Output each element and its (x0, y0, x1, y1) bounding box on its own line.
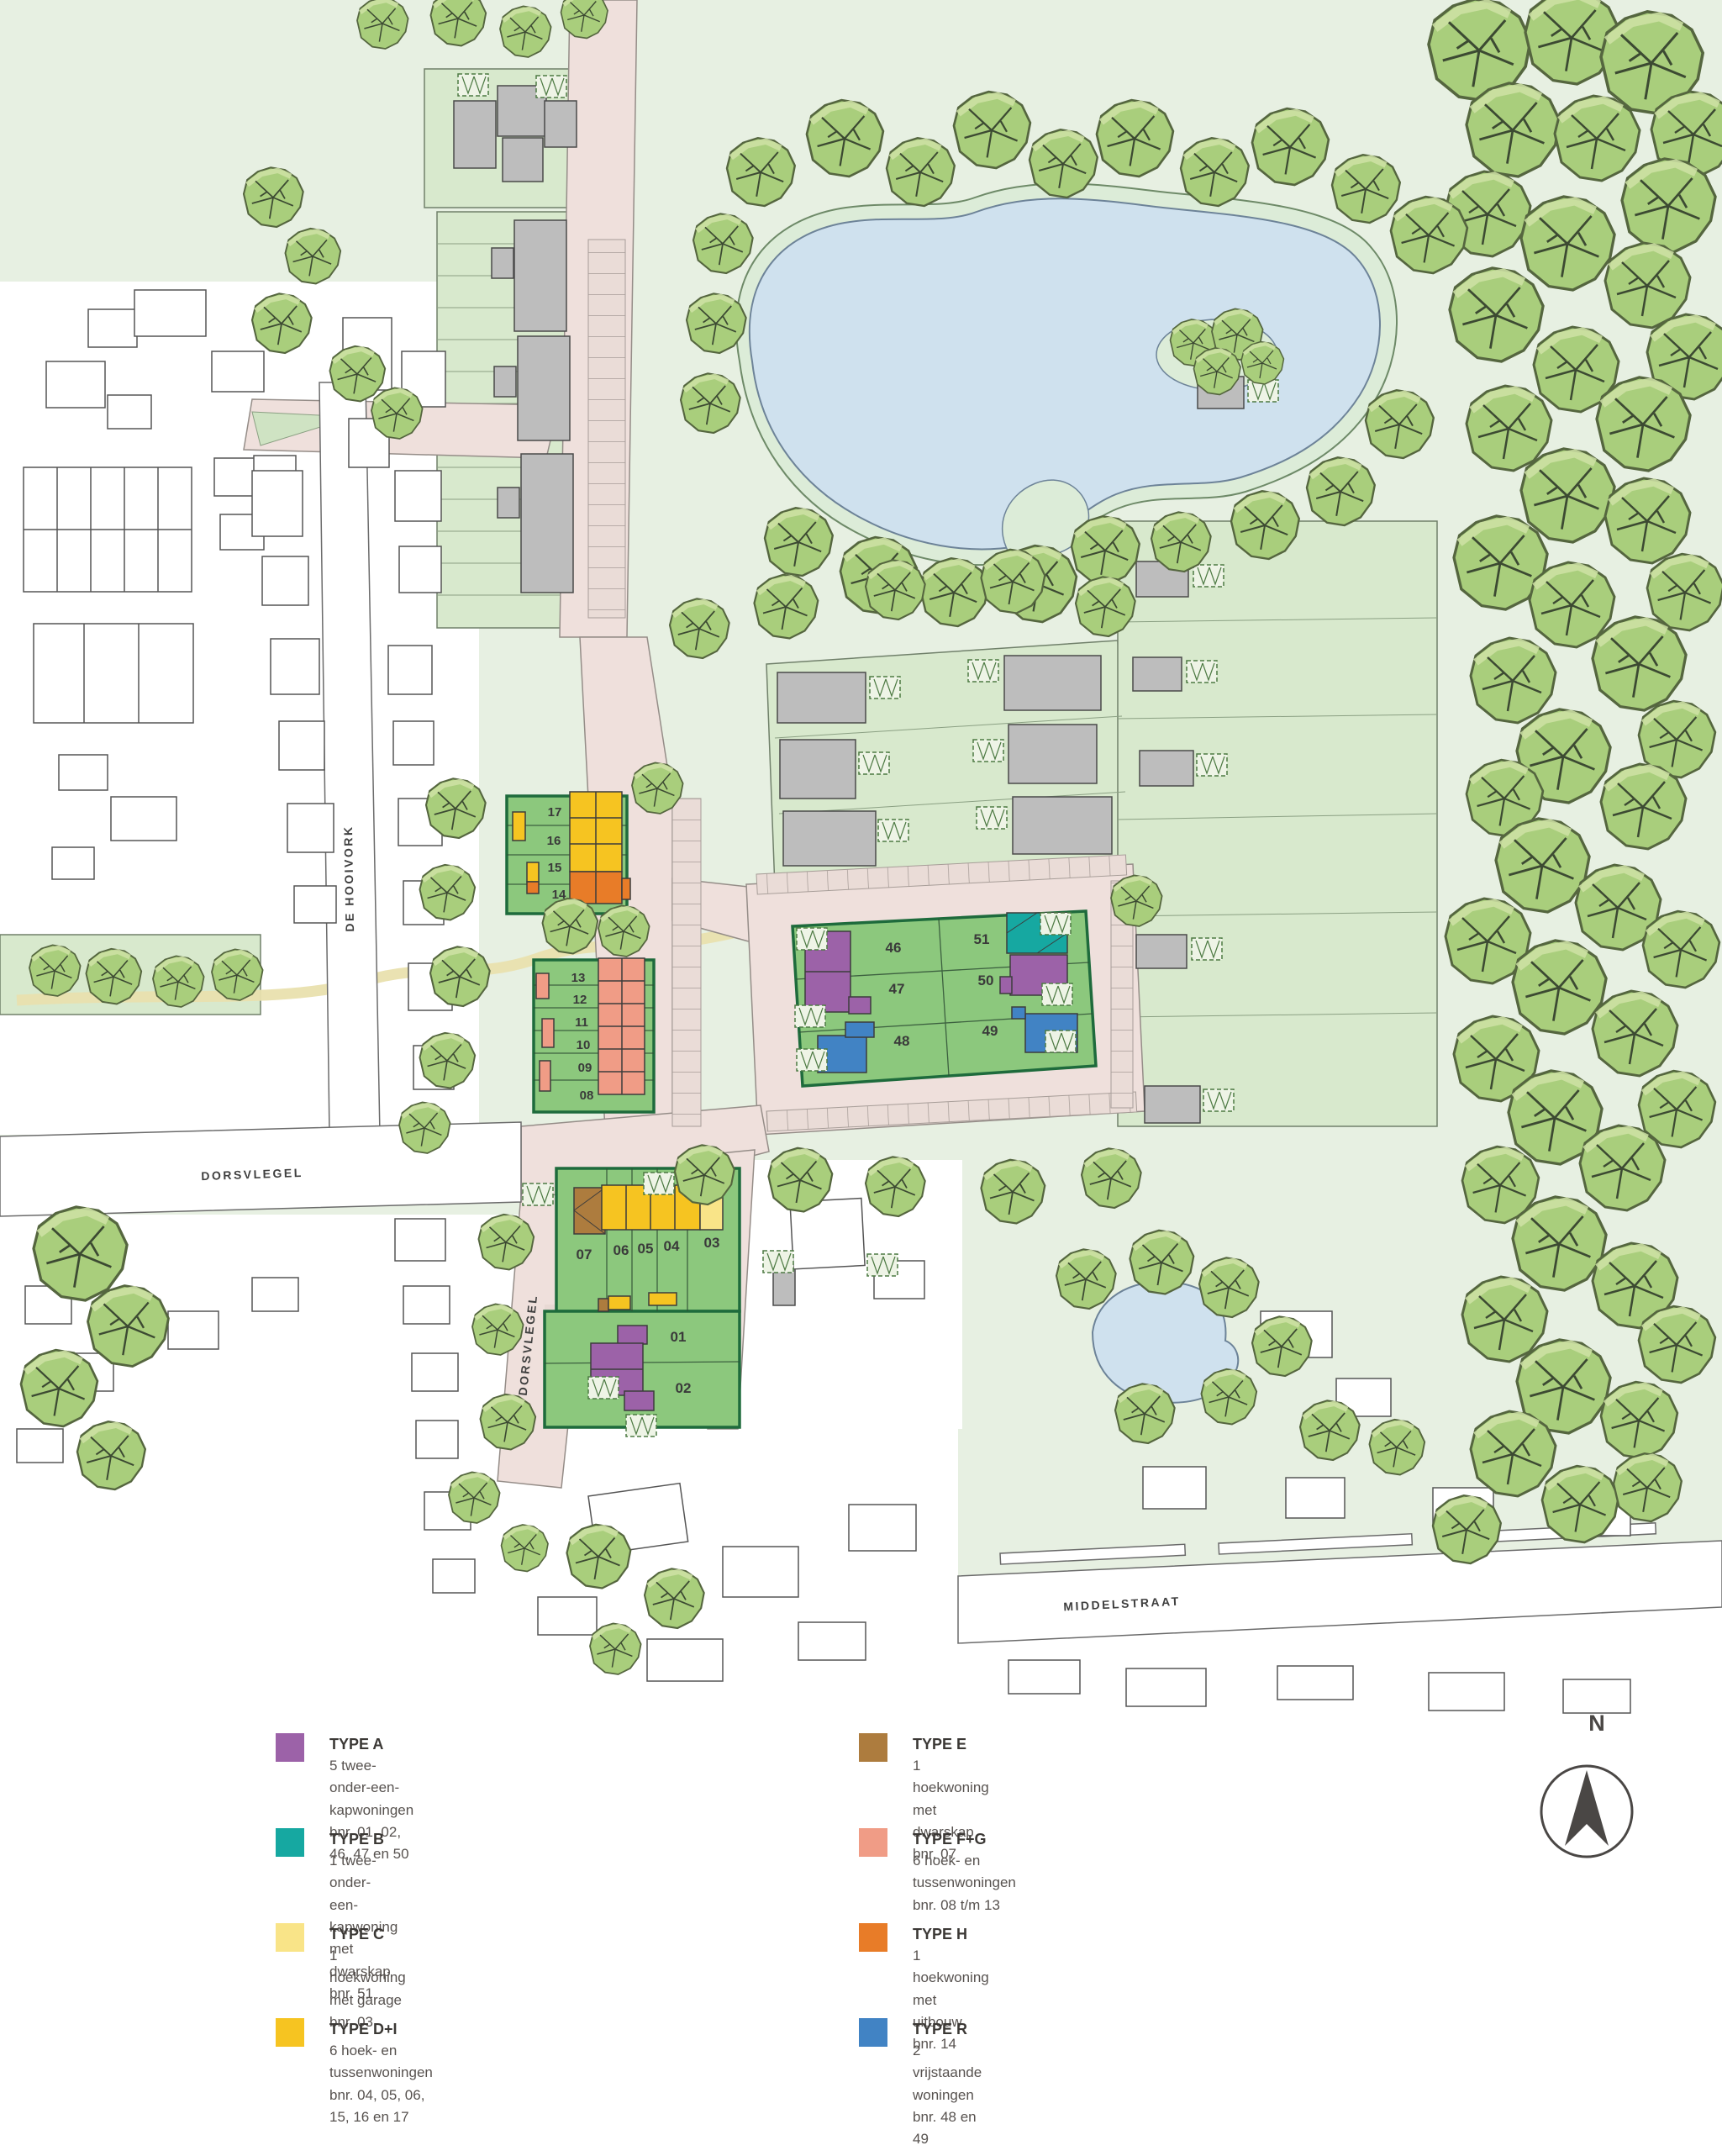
plot-number: 06 (613, 1242, 629, 1258)
plot-number: 10 (577, 1038, 591, 1052)
legend-item-type-fg: TYPE F+G 6 hoek- en tussenwoningen bnr. … (859, 1828, 1016, 1916)
legend-swatch (276, 2018, 304, 2047)
legend-label: TYPE A (329, 1733, 413, 1755)
plot-number: 46 (886, 940, 902, 956)
plot-number: 48 (894, 1033, 910, 1049)
legend-swatch (859, 2018, 887, 2047)
north-arrow: N (1530, 1711, 1664, 1870)
legend-swatch (859, 1733, 887, 1762)
plot-number: 16 (547, 834, 561, 848)
plot-number: 09 (578, 1061, 592, 1075)
plot-number: 01 (671, 1329, 687, 1345)
plot-number: 11 (575, 1015, 588, 1030)
plot-number: 49 (982, 1023, 998, 1039)
plot-number: 04 (664, 1238, 680, 1254)
legend-swatch (276, 1733, 304, 1762)
plot-number: 17 (548, 805, 562, 820)
plot-number: 15 (548, 861, 562, 875)
plot-number: 05 (638, 1241, 654, 1257)
plot-number: 14 (552, 888, 566, 902)
legend-swatch (859, 1923, 887, 1952)
legend-item-type-r: TYPE R 2 vrijstaande woningen bnr. 48 en… (859, 2018, 982, 2151)
plot-number: 50 (978, 973, 994, 988)
plot-number: 13 (571, 971, 586, 985)
plot-number: 51 (974, 931, 990, 947)
street-label-de-hooivork: DE HOOIVORK (341, 825, 356, 931)
plot-number: 03 (704, 1235, 720, 1251)
plot-number: 07 (577, 1247, 592, 1262)
plot-number: 47 (889, 981, 905, 997)
legend-desc: 5 twee-onder-een-kapwoningen (329, 1755, 413, 1821)
north-label: N (1530, 1711, 1664, 1737)
legend-swatch (859, 1828, 887, 1857)
plot-number: 08 (580, 1089, 594, 1103)
legend-swatch (276, 1923, 304, 1952)
plot-number: 02 (676, 1380, 692, 1396)
legend-item-type-c: TYPE C 1 hoekwoning met garage bnr. 03 (276, 1923, 406, 2033)
plot-number: 12 (573, 993, 587, 1007)
legend-item-type-di: TYPE D+I 6 hoek- en tussenwoningen bnr. … (276, 2018, 433, 2128)
legend-swatch (276, 1828, 304, 1857)
